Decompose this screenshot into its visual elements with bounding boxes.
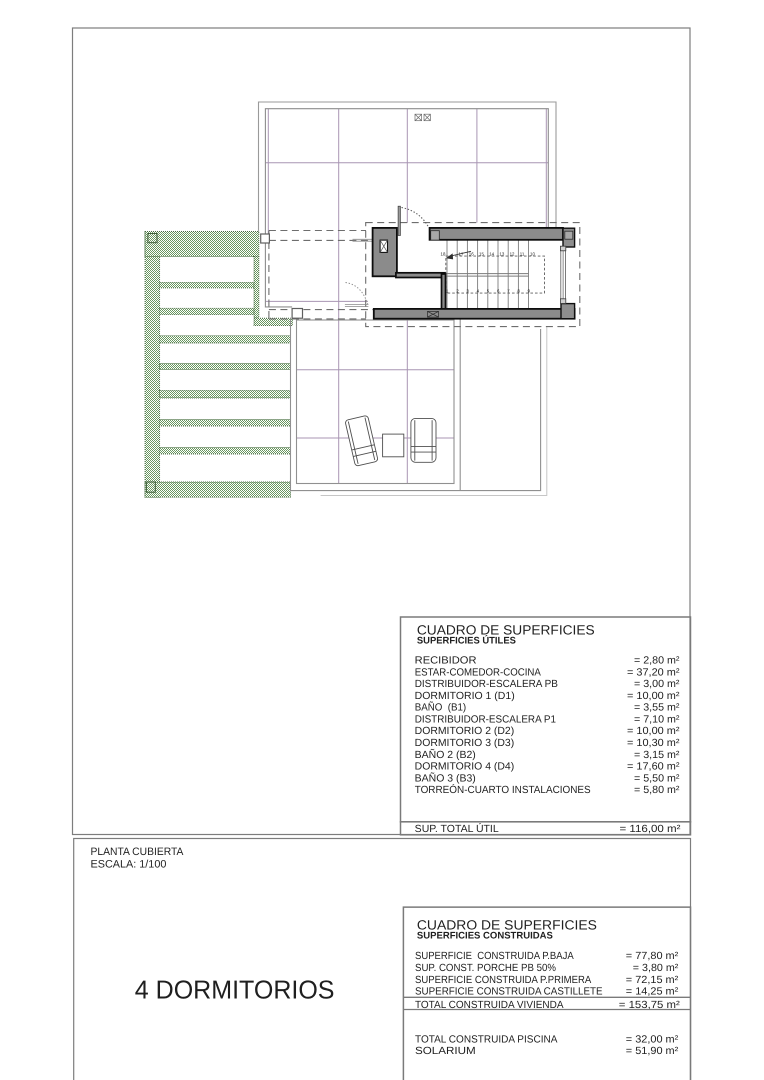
svg-text:DORMITORIO 3 (D3): DORMITORIO 3 (D3) — [415, 738, 515, 749]
svg-text:= 51,90 m²: = 51,90 m² — [626, 1046, 679, 1057]
svg-text:12: 12 — [510, 251, 515, 256]
svg-text:= 116,00 m²: = 116,00 m² — [620, 824, 682, 835]
svg-text:= 72,15 m²: = 72,15 m² — [626, 975, 679, 986]
svg-text:= 32,00 m²: = 32,00 m² — [626, 1035, 679, 1046]
svg-text:= 10,00 m²: = 10,00 m² — [627, 726, 680, 737]
svg-text:18: 18 — [441, 251, 446, 256]
svg-text:= 3,55 m²: = 3,55 m² — [634, 703, 680, 714]
svg-text:DORMITORIO 4 (D4): DORMITORIO 4 (D4) — [415, 762, 515, 773]
svg-text:RECIBIDOR: RECIBIDOR — [415, 656, 477, 667]
svg-text:DISTRIBUIDOR-ESCALERA PB: DISTRIBUIDOR-ESCALERA PB — [415, 679, 558, 690]
svg-text:SUP. TOTAL ÚTIL: SUP. TOTAL ÚTIL — [415, 822, 499, 835]
svg-text:14: 14 — [489, 251, 494, 256]
svg-text:= 2,80 m²: = 2,80 m² — [634, 656, 680, 667]
svg-text:ESTAR-COMEDOR-COCINA: ESTAR-COMEDOR-COCINA — [415, 667, 541, 678]
svg-text:= 10,00 m²: = 10,00 m² — [627, 691, 680, 702]
svg-text:DORMITORIO 2 (D2): DORMITORIO 2 (D2) — [415, 726, 515, 737]
svg-text:DISTRIBUIDOR-ESCALERA P1: DISTRIBUIDOR-ESCALERA P1 — [415, 714, 556, 725]
svg-text:17: 17 — [459, 251, 464, 256]
svg-text:= 10,30 m²: = 10,30 m² — [627, 738, 680, 749]
svg-text:16: 16 — [469, 251, 474, 256]
svg-text:= 5,80 m²: = 5,80 m² — [634, 785, 680, 796]
svg-text:= 37,20 m²: = 37,20 m² — [627, 667, 680, 678]
svg-text:= 5,50 m²: = 5,50 m² — [634, 773, 680, 784]
svg-text:4 DORMITORIOS: 4 DORMITORIOS — [135, 975, 335, 1005]
svg-text:ESCALA: 1/100: ESCALA: 1/100 — [91, 858, 167, 870]
svg-text:= 3,00 m²: = 3,00 m² — [634, 679, 680, 690]
svg-text:SUP. CONST. PORCHE PB 50%: SUP. CONST. PORCHE PB 50% — [415, 963, 556, 974]
svg-text:SOLARIUM: SOLARIUM — [415, 1046, 476, 1057]
svg-text:SUPERFICIES CONSTRUIDAS: SUPERFICIES CONSTRUIDAS — [417, 931, 554, 942]
svg-text:13: 13 — [499, 251, 504, 256]
svg-text:SUPERFICIE CONSTRUIDA CASTILLE: SUPERFICIE CONSTRUIDA CASTILLETE — [415, 987, 603, 998]
svg-text:PLANTA CUBIERTA: PLANTA CUBIERTA — [91, 846, 185, 858]
svg-text:TOTAL CONSTRUIDA PISCINA: TOTAL CONSTRUIDA PISCINA — [415, 1035, 557, 1046]
svg-text:SUPERFICIE CONSTRUIDA P.PRIMER: SUPERFICIE CONSTRUIDA P.PRIMERA — [415, 975, 591, 986]
svg-text:= 3,15 m²: = 3,15 m² — [634, 750, 680, 761]
svg-text:BAÑO 2 (B2): BAÑO 2 (B2) — [415, 748, 476, 761]
svg-text:SUPERFICIE CONSTRUIDA P.BAJA: SUPERFICIE CONSTRUIDA P.BAJA — [415, 951, 574, 962]
svg-text:= 3,80 m²: = 3,80 m² — [633, 963, 679, 974]
svg-text:10: 10 — [530, 251, 535, 256]
svg-text:DORMITORIO 1 (D1): DORMITORIO 1 (D1) — [415, 691, 515, 702]
svg-text:BAÑO (B1): BAÑO (B1) — [415, 701, 467, 714]
svg-text:= 17,60 m²: = 17,60 m² — [627, 762, 680, 773]
svg-text:= 7,10 m²: = 7,10 m² — [634, 714, 680, 725]
svg-text:TORREÓN-CUARTO INSTALACIONES: TORREÓN-CUARTO INSTALACIONES — [415, 783, 591, 796]
svg-text:= 77,80 m²: = 77,80 m² — [626, 951, 679, 962]
svg-text:= 14,25 m²: = 14,25 m² — [626, 987, 679, 998]
svg-text:11: 11 — [520, 251, 525, 256]
svg-text:BAÑO 3 (B3): BAÑO 3 (B3) — [415, 771, 476, 784]
svg-text:15: 15 — [479, 251, 484, 256]
svg-text:SUPERFICIES ÚTILES: SUPERFICIES ÚTILES — [417, 635, 517, 647]
